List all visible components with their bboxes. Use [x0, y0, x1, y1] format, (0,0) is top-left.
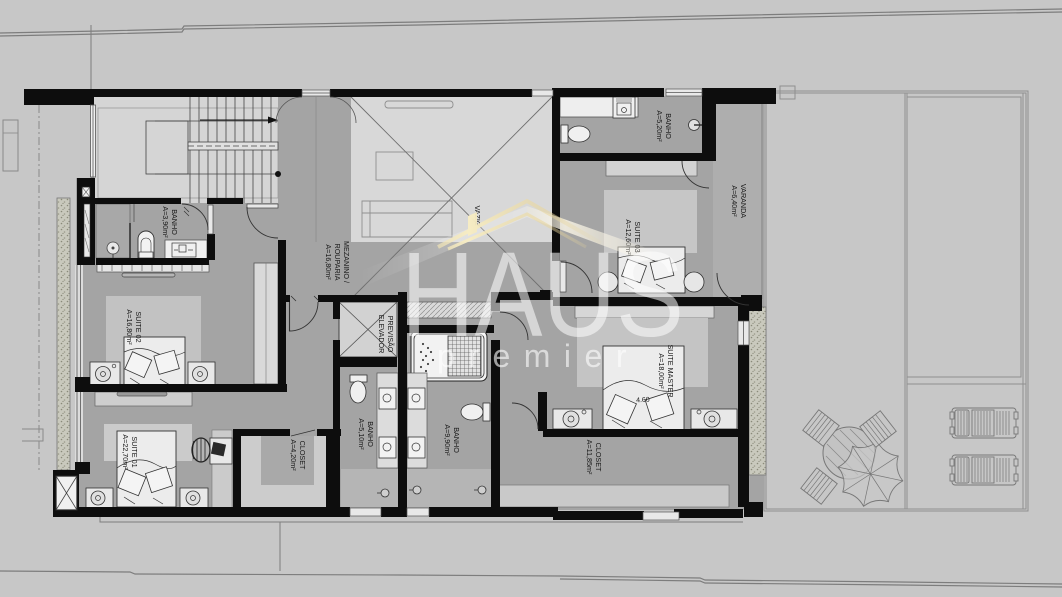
svg-text:A=5,10m²: A=5,10m²: [357, 418, 366, 450]
svg-text:BANHO: BANHO: [170, 209, 179, 235]
svg-text:A=4,20m²: A=4,20m²: [289, 439, 298, 471]
svg-text:SUITE 01: SUITE 01: [130, 436, 139, 467]
svg-text:BANHO: BANHO: [452, 427, 461, 453]
svg-text:A=16,80m²: A=16,80m²: [324, 244, 333, 280]
svg-text:A=11,85m²: A=11,85m²: [585, 440, 594, 475]
svg-text:A=3,90m²: A=3,90m²: [161, 206, 170, 238]
svg-text:A=5,20m²: A=5,20m²: [655, 110, 664, 142]
svg-text:4.60: 4.60: [636, 397, 650, 405]
svg-text:ROUPARIA: ROUPARIA: [333, 243, 342, 280]
svg-text:ELEVADOR: ELEVADOR: [377, 315, 386, 354]
svg-text:A=6,40m²: A=6,40m²: [730, 185, 739, 217]
svg-text:CLOSET: CLOSET: [298, 441, 307, 470]
svg-text:BANHO: BANHO: [664, 113, 673, 139]
svg-text:A=16,80m²: A=16,80m²: [125, 309, 134, 345]
svg-text:A=22,70m²: A=22,70m²: [121, 434, 130, 470]
svg-text:MEZANINO /: MEZANINO /: [342, 241, 351, 283]
svg-text:VARANDA: VARANDA: [739, 184, 748, 218]
svg-text:A=9,90m²: A=9,90m²: [443, 424, 452, 456]
svg-text:SUITE 02: SUITE 02: [134, 311, 143, 342]
svg-text:premier: premier: [437, 338, 640, 374]
svg-text:PREVISÃO: PREVISÃO: [386, 316, 395, 353]
svg-text:CLOSET: CLOSET: [594, 443, 603, 472]
svg-text:BANHO: BANHO: [366, 421, 375, 447]
